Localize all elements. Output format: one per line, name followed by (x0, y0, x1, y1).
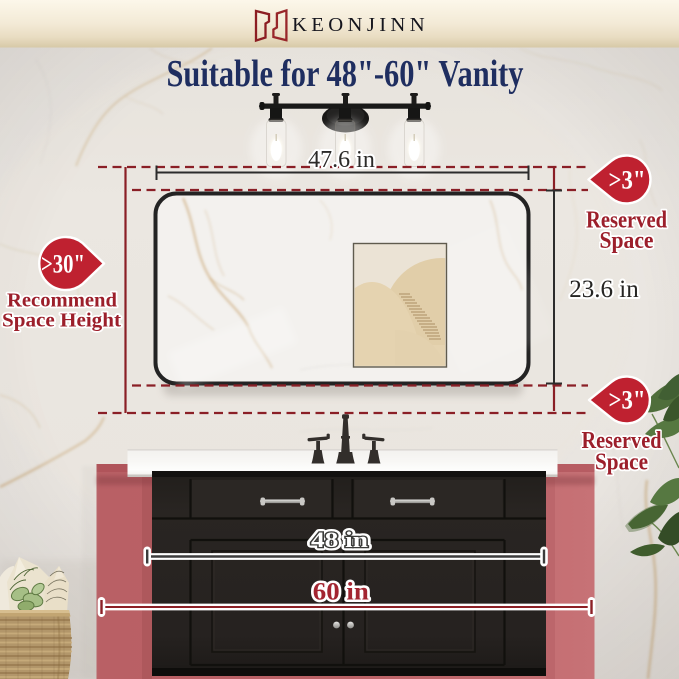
svg-text:48 in: 48 in (311, 527, 368, 552)
svg-text:23.6 in: 23.6 in (569, 276, 639, 303)
svg-text:>3": >3" (609, 166, 646, 195)
svg-text:Recommend: Recommend (7, 290, 117, 312)
svg-text:Space: Space (600, 228, 654, 254)
svg-text:Suitable for 48"-60" Vanity: Suitable for 48"-60" Vanity (167, 53, 524, 95)
svg-text:>30": >30" (41, 250, 85, 279)
svg-text:60 in: 60 in (313, 579, 369, 606)
svg-text:Space: Space (595, 450, 648, 476)
svg-text:47.6 in: 47.6 in (308, 147, 375, 173)
svg-text:Space Height: Space Height (2, 310, 121, 332)
svg-text:>3": >3" (609, 386, 646, 415)
svg-text:KEONJINN: KEONJINN (292, 14, 429, 36)
